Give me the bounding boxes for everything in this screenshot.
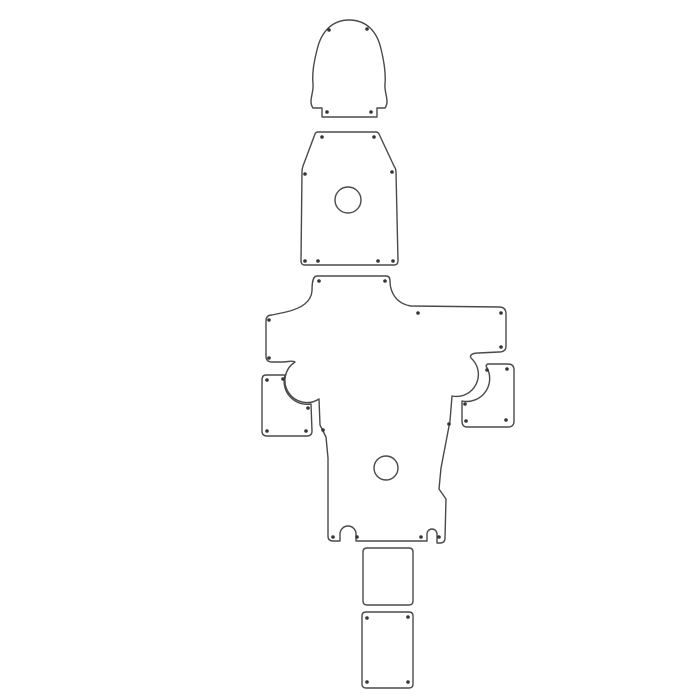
left-side-panel-mounting-hole	[281, 377, 285, 381]
torso-trapezoid-panel-mounting-hole	[390, 170, 394, 174]
main-cross-body-panel-mounting-hole	[499, 345, 503, 349]
right-side-panel-mounting-hole	[504, 418, 508, 422]
main-cross-body-panel-mounting-hole	[419, 535, 423, 539]
upper-small-rect-panel	[363, 548, 413, 605]
torso-trapezoid-panel-mounting-hole	[376, 259, 380, 263]
torso-trapezoid-panel-mounting-hole	[303, 172, 307, 176]
right-side-panel-mounting-hole	[463, 402, 467, 406]
head-bell-panel	[311, 20, 387, 117]
main-cross-body-panel-mounting-hole	[447, 422, 451, 426]
right-side-panel-mounting-hole	[485, 368, 489, 372]
torso-trapezoid-panel-mounting-hole	[316, 259, 320, 263]
torso-trapezoid-panel-mounting-hole	[303, 259, 307, 263]
left-side-panel-mounting-hole	[265, 429, 269, 433]
torso-trapezoid-panel-mounting-hole	[391, 259, 395, 263]
upper-small-rect-panel-outline	[363, 548, 413, 605]
torso-trapezoid-panel-outline	[301, 132, 398, 265]
head-bell-panel-mounting-hole	[369, 110, 373, 114]
head-bell-panel-outline	[311, 20, 387, 117]
main-cross-body-panel-mounting-hole	[267, 318, 271, 322]
head-bell-panel-mounting-hole	[365, 27, 369, 31]
main-cross-body-panel-mounting-hole	[331, 535, 335, 539]
lower-small-rect-panel-mounting-hole	[365, 616, 369, 620]
drawing-canvas	[0, 0, 700, 700]
lower-small-rect-panel	[362, 612, 413, 688]
torso-trapezoid-panel-mounting-hole	[320, 135, 324, 139]
left-side-panel-mounting-hole	[306, 406, 310, 410]
lower-small-rect-panel-outline	[362, 612, 413, 688]
right-side-panel-mounting-hole	[505, 367, 509, 371]
main-cross-body-panel-mounting-hole	[321, 428, 325, 432]
main-cross-body-panel-mounting-hole	[437, 535, 441, 539]
right-side-panel-mounting-hole	[464, 419, 468, 423]
torso-trapezoid-panel	[301, 132, 398, 265]
main-cross-body-panel-mounting-hole	[499, 311, 503, 315]
main-cross-body-panel-mounting-hole	[267, 356, 271, 360]
main-cross-body-panel-mounting-hole	[383, 279, 387, 283]
lower-small-rect-panel-mounting-hole	[365, 680, 369, 684]
main-cross-body-panel-mounting-hole	[355, 535, 359, 539]
main-cross-body-panel-mounting-hole	[317, 279, 321, 283]
lower-small-rect-panel-mounting-hole	[406, 615, 410, 619]
head-bell-panel-mounting-hole	[327, 28, 331, 32]
left-side-panel-mounting-hole	[304, 429, 308, 433]
main-cross-body-panel-mounting-hole	[416, 311, 420, 315]
lower-small-rect-panel-mounting-hole	[406, 680, 410, 684]
head-bell-panel-mounting-hole	[325, 110, 329, 114]
left-side-panel-mounting-hole	[265, 378, 269, 382]
panel-template-drawing	[0, 0, 700, 700]
torso-trapezoid-panel-mounting-hole	[372, 135, 376, 139]
